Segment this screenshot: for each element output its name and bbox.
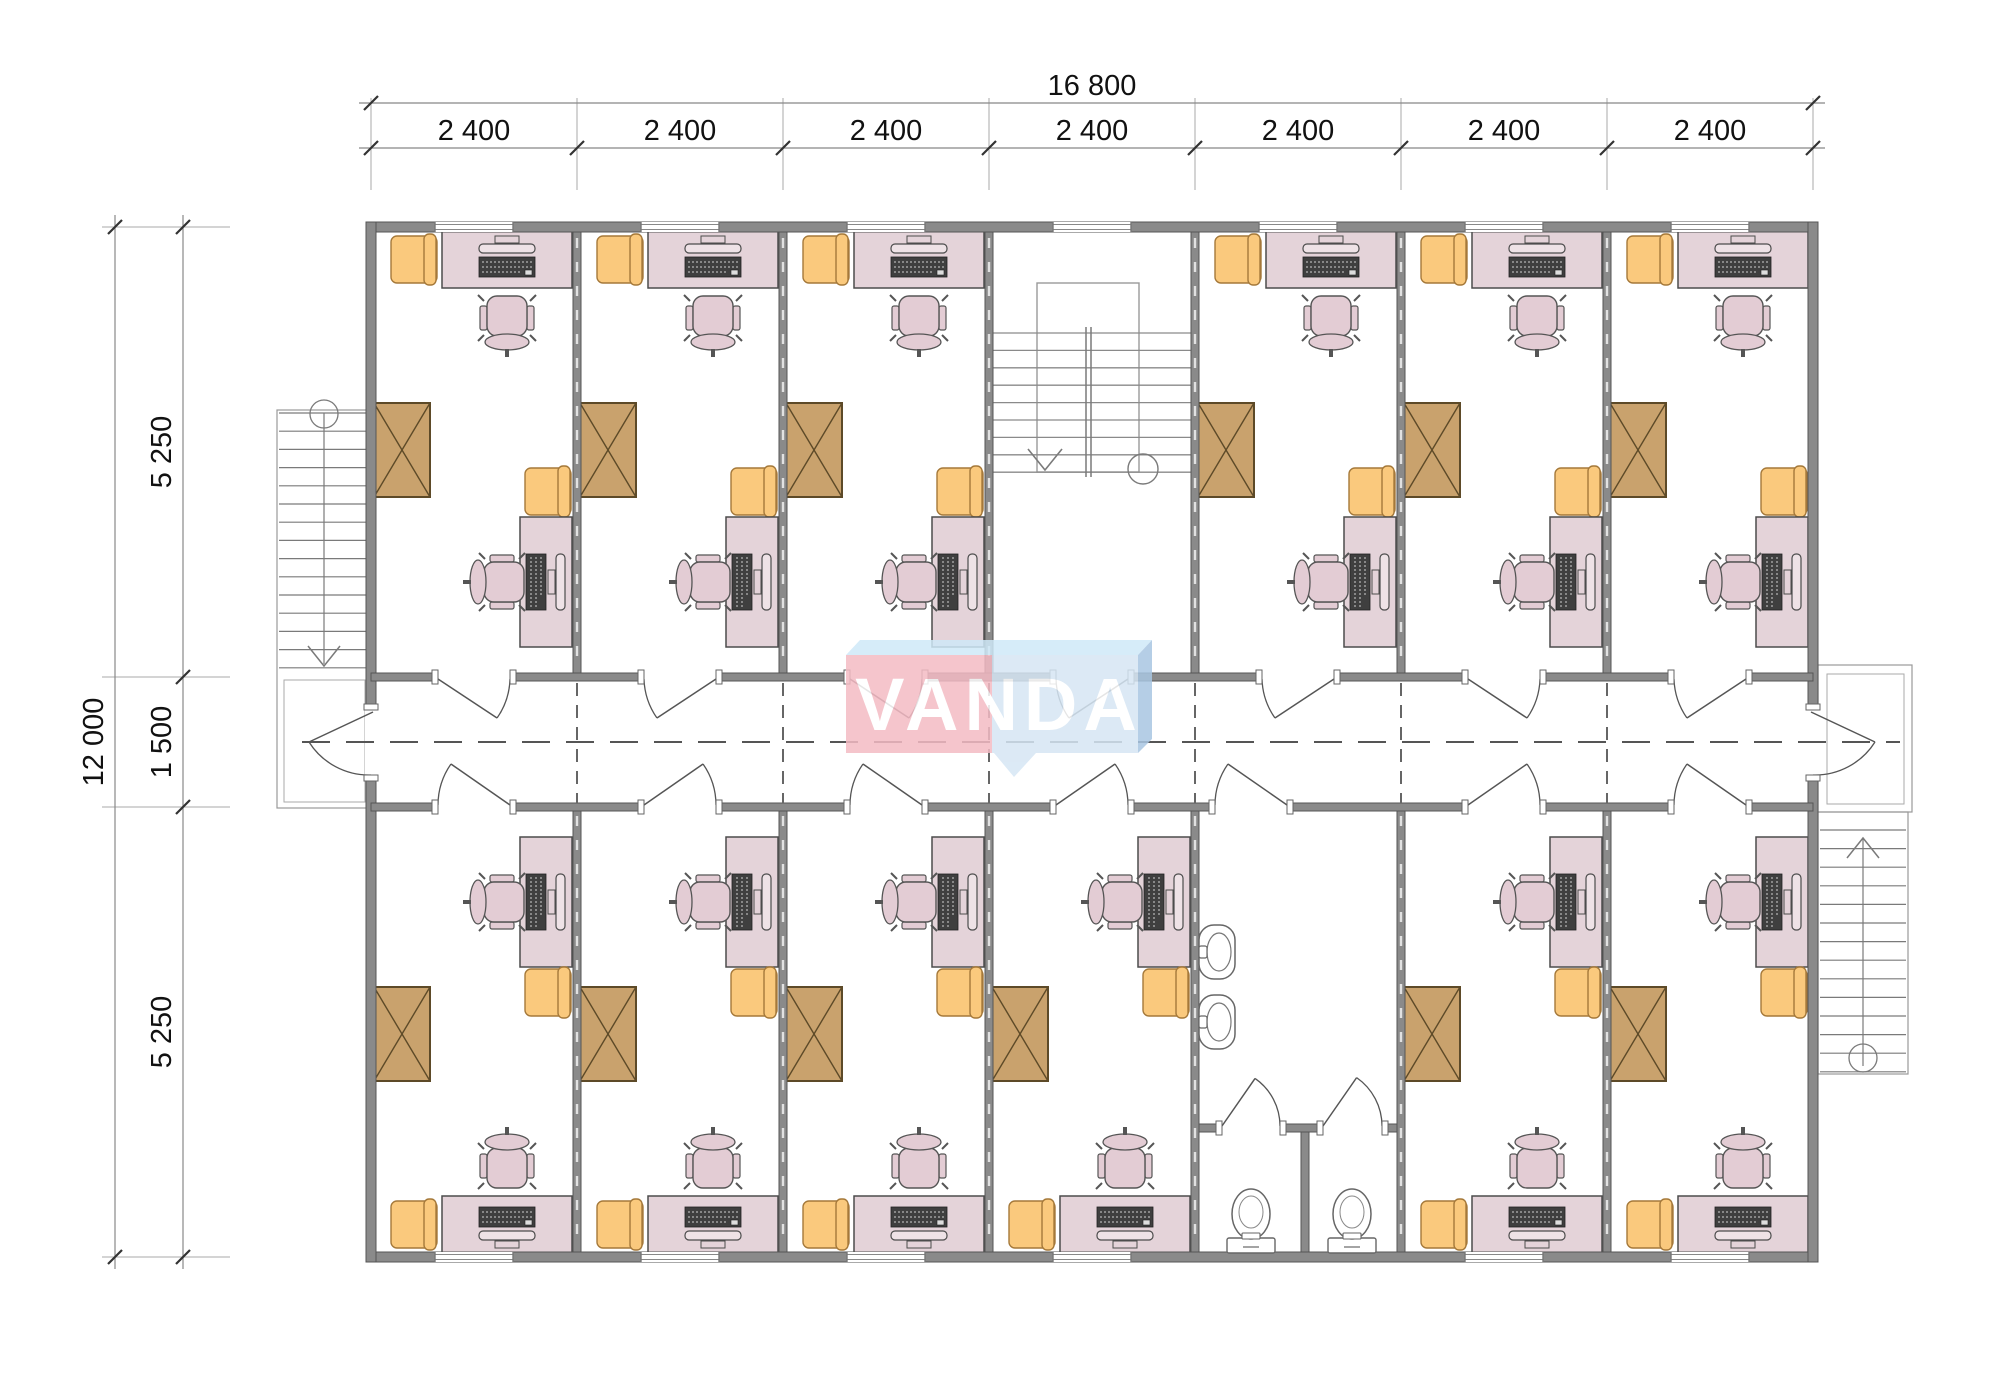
dimension-label: 2 400	[850, 115, 923, 147]
desk-icon	[1472, 230, 1602, 288]
door	[1215, 764, 1287, 813]
keyboard-icon	[891, 257, 947, 277]
keyboard-icon	[685, 1207, 741, 1227]
keyboard-icon	[1350, 554, 1370, 610]
central-staircase	[993, 283, 1191, 484]
toilet-icon	[1227, 1189, 1275, 1253]
door	[438, 671, 510, 718]
armchair-icon	[1627, 1199, 1673, 1250]
sink-icon	[1199, 995, 1235, 1049]
dimension-label: 5 250	[146, 416, 178, 489]
wardrobe-icon	[1404, 987, 1460, 1081]
desk-icon	[726, 517, 778, 647]
armchair-icon	[1215, 234, 1261, 285]
wardrobe-icon	[580, 403, 636, 497]
desk-icon	[1550, 837, 1602, 967]
desk-icon	[932, 517, 984, 647]
keyboard-icon	[1097, 1207, 1153, 1227]
stall-door	[1323, 1078, 1382, 1134]
keyboard-icon	[1509, 1207, 1565, 1227]
room-top-2	[580, 230, 778, 647]
office-chair-icon	[1508, 295, 1566, 357]
keyboard-icon	[479, 1207, 535, 1227]
keyboard-icon	[1715, 1207, 1771, 1227]
wardrobe-icon	[580, 987, 636, 1081]
window-icon	[1053, 222, 1131, 232]
keyboard-icon	[1144, 874, 1164, 930]
armchair-icon	[1421, 1199, 1467, 1250]
wardrobe-icon	[992, 987, 1048, 1081]
keyboard-icon	[938, 874, 958, 930]
armchair-icon	[1143, 967, 1189, 1018]
wardrobe-icon	[786, 403, 842, 497]
office-chair-icon	[1493, 873, 1555, 931]
armchair-icon	[937, 466, 983, 517]
desk-icon	[1472, 1196, 1602, 1254]
door	[1056, 764, 1128, 813]
window-icon	[1259, 222, 1337, 232]
armchair-icon	[937, 967, 983, 1018]
armchair-icon	[803, 234, 849, 285]
office-chair-icon	[890, 295, 948, 357]
dimension-label: 12 000	[78, 698, 110, 787]
door	[1674, 671, 1746, 718]
door	[1468, 764, 1540, 813]
keyboard-icon	[1762, 874, 1782, 930]
desk-icon	[1266, 230, 1396, 288]
window-icon	[435, 222, 513, 232]
armchair-icon	[597, 234, 643, 285]
window-icon	[1053, 1252, 1131, 1262]
wardrobe-icon	[1610, 403, 1666, 497]
armchair-icon	[1349, 466, 1395, 517]
door	[1674, 764, 1746, 813]
dimension-label: 2 400	[1262, 115, 1335, 147]
office-chair-icon	[478, 295, 536, 357]
office-chair-icon	[684, 1127, 742, 1189]
room-bottom-6	[1404, 837, 1602, 1254]
dimension-label: 2 400	[1056, 115, 1129, 147]
desk-icon	[1678, 1196, 1808, 1254]
wardrobe-icon	[1610, 987, 1666, 1081]
dimension-label: 2 400	[644, 115, 717, 147]
room-bottom-3	[786, 837, 984, 1254]
window-icon	[847, 222, 925, 232]
door	[1468, 671, 1540, 718]
window-icon	[1671, 1252, 1749, 1262]
keyboard-icon	[938, 554, 958, 610]
desk-icon	[648, 1196, 778, 1254]
office-chair-icon	[1302, 295, 1360, 357]
armchair-icon	[1555, 967, 1601, 1018]
office-chair-icon	[1699, 553, 1761, 611]
office-chair-icon	[890, 1127, 948, 1189]
room-top-6	[1404, 230, 1602, 647]
window-icon	[1465, 222, 1543, 232]
room-bottom-7	[1610, 837, 1808, 1254]
office-chair-icon	[463, 873, 525, 931]
office-chair-icon	[463, 553, 525, 611]
wardrobe-icon	[374, 987, 430, 1081]
wardrobe-icon	[1198, 403, 1254, 497]
armchair-icon	[731, 967, 777, 1018]
sink-icon	[1199, 925, 1235, 979]
desk-icon	[1756, 517, 1808, 647]
armchair-icon	[597, 1199, 643, 1250]
desk-icon	[442, 230, 572, 288]
keyboard-icon	[1556, 554, 1576, 610]
wardrobe-icon	[786, 987, 842, 1081]
room-top-7	[1610, 230, 1808, 647]
keyboard-icon	[732, 874, 752, 930]
stall-divider-wall	[1301, 1132, 1309, 1252]
armchair-icon	[1761, 967, 1807, 1018]
room-top-1	[374, 230, 572, 647]
keyboard-icon	[1556, 874, 1576, 930]
desk-icon	[1550, 517, 1602, 647]
keyboard-icon	[1762, 554, 1782, 610]
window-icon	[1671, 222, 1749, 232]
desk-icon	[726, 837, 778, 967]
floor-plan: 16 8002 4002 4002 4002 4002 4002 4002 40…	[0, 0, 2000, 1380]
keyboard-icon	[1303, 257, 1359, 277]
armchair-icon	[1761, 466, 1807, 517]
room-bottom-4	[992, 837, 1190, 1254]
door	[1262, 671, 1334, 718]
window-icon	[641, 1252, 719, 1262]
desk-icon	[932, 837, 984, 967]
office-chair-icon	[875, 873, 937, 931]
office-chair-icon	[1699, 873, 1761, 931]
dimension-label: 1 500	[146, 706, 178, 779]
door	[644, 671, 716, 718]
armchair-icon	[803, 1199, 849, 1250]
stall-door	[1222, 1078, 1280, 1134]
room-top-3	[786, 230, 984, 647]
armchair-icon	[1627, 234, 1673, 285]
keyboard-icon	[526, 554, 546, 610]
armchair-icon	[525, 967, 571, 1018]
dimension-label: 2 400	[1468, 115, 1541, 147]
door	[644, 764, 716, 813]
room-bottom-2	[580, 837, 778, 1254]
armchair-icon	[1555, 466, 1601, 517]
window-icon	[1465, 1252, 1543, 1262]
door	[850, 764, 922, 813]
room-top-5	[1198, 230, 1396, 647]
office-chair-icon	[478, 1127, 536, 1189]
office-chair-icon	[669, 873, 731, 931]
desk-icon	[1678, 230, 1808, 288]
window-icon	[435, 1252, 513, 1262]
armchair-icon	[391, 1199, 437, 1250]
logo-text: VANDA	[855, 663, 1143, 746]
dimension-label: 5 250	[146, 996, 178, 1069]
wardrobe-icon	[1404, 403, 1460, 497]
dimension-label: 16 800	[1048, 70, 1137, 102]
staircase-left	[277, 400, 371, 808]
desk-icon	[520, 517, 572, 647]
office-chair-icon	[1493, 553, 1555, 611]
office-chair-icon	[1714, 295, 1772, 357]
desk-icon	[854, 1196, 984, 1254]
armchair-icon	[731, 466, 777, 517]
keyboard-icon	[685, 257, 741, 277]
keyboard-icon	[1715, 257, 1771, 277]
desk-icon	[1138, 837, 1190, 967]
door	[438, 764, 510, 813]
desk-icon	[1344, 517, 1396, 647]
desk-icon	[1060, 1196, 1190, 1254]
desk-icon	[1756, 837, 1808, 967]
keyboard-icon	[1509, 257, 1565, 277]
desk-icon	[854, 230, 984, 288]
office-chair-icon	[684, 295, 742, 357]
armchair-icon	[525, 466, 571, 517]
room-bottom-1	[374, 837, 572, 1254]
brand-logo: VANDA	[846, 640, 1152, 777]
office-chair-icon	[669, 553, 731, 611]
dimension-label: 2 400	[1674, 115, 1747, 147]
toilet-icon	[1328, 1189, 1376, 1253]
window-icon	[847, 1252, 925, 1262]
floor-plan-drawing: 16 8002 4002 4002 4002 4002 4002 4002 40…	[0, 0, 2000, 1380]
office-chair-icon	[1096, 1127, 1154, 1189]
keyboard-icon	[479, 257, 535, 277]
armchair-icon	[1421, 234, 1467, 285]
desk-icon	[442, 1196, 572, 1254]
armchair-icon	[391, 234, 437, 285]
wardrobe-icon	[374, 403, 430, 497]
staircase-right	[1818, 665, 1912, 1074]
keyboard-icon	[526, 874, 546, 930]
office-chair-icon	[875, 553, 937, 611]
office-chair-icon	[1714, 1127, 1772, 1189]
office-chair-icon	[1287, 553, 1349, 611]
office-chair-icon	[1508, 1127, 1566, 1189]
desk-icon	[648, 230, 778, 288]
keyboard-icon	[732, 554, 752, 610]
window-icon	[641, 222, 719, 232]
armchair-icon	[1009, 1199, 1055, 1250]
desk-icon	[520, 837, 572, 967]
dimension-label: 2 400	[438, 115, 511, 147]
keyboard-icon	[891, 1207, 947, 1227]
office-chair-icon	[1081, 873, 1143, 931]
